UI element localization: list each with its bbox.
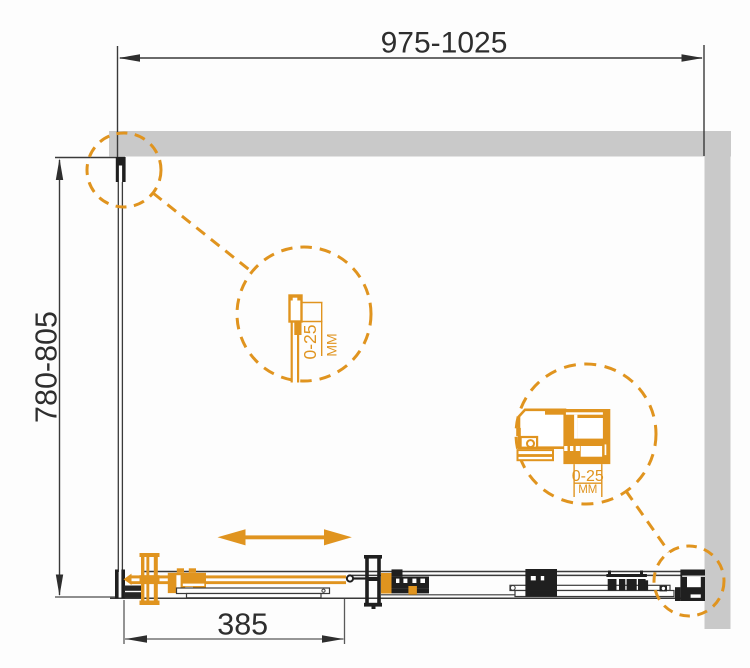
svg-text:385: 385 [217, 608, 268, 642]
svg-text:0-25: 0-25 [572, 468, 604, 485]
svg-text:0-25: 0-25 [300, 324, 320, 359]
svg-text:MM: MM [324, 333, 340, 356]
svg-text:MM: MM [578, 484, 597, 496]
svg-text:780-805: 780-805 [30, 311, 64, 423]
svg-text:975-1025: 975-1025 [381, 27, 508, 60]
